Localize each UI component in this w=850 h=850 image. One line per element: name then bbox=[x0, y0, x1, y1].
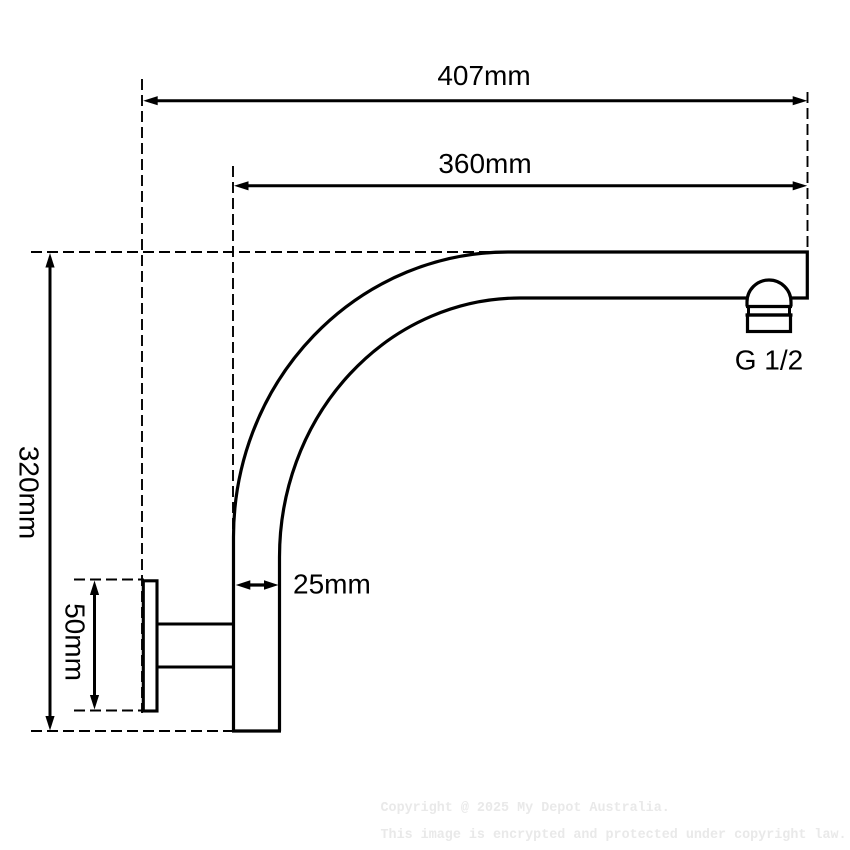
svg-text:50mm: 50mm bbox=[60, 603, 91, 681]
svg-text:360mm: 360mm bbox=[438, 148, 531, 179]
svg-text:G 1/2: G 1/2 bbox=[735, 345, 803, 376]
svg-text:This image is encrypted and pr: This image is encrypted and protected un… bbox=[381, 828, 847, 843]
svg-text:407mm: 407mm bbox=[437, 60, 530, 91]
svg-text:320mm: 320mm bbox=[14, 446, 45, 539]
svg-text:Copyright @ 2025 My Depot Aust: Copyright @ 2025 My Depot Australia. bbox=[381, 801, 670, 816]
svg-text:25mm: 25mm bbox=[293, 569, 371, 600]
